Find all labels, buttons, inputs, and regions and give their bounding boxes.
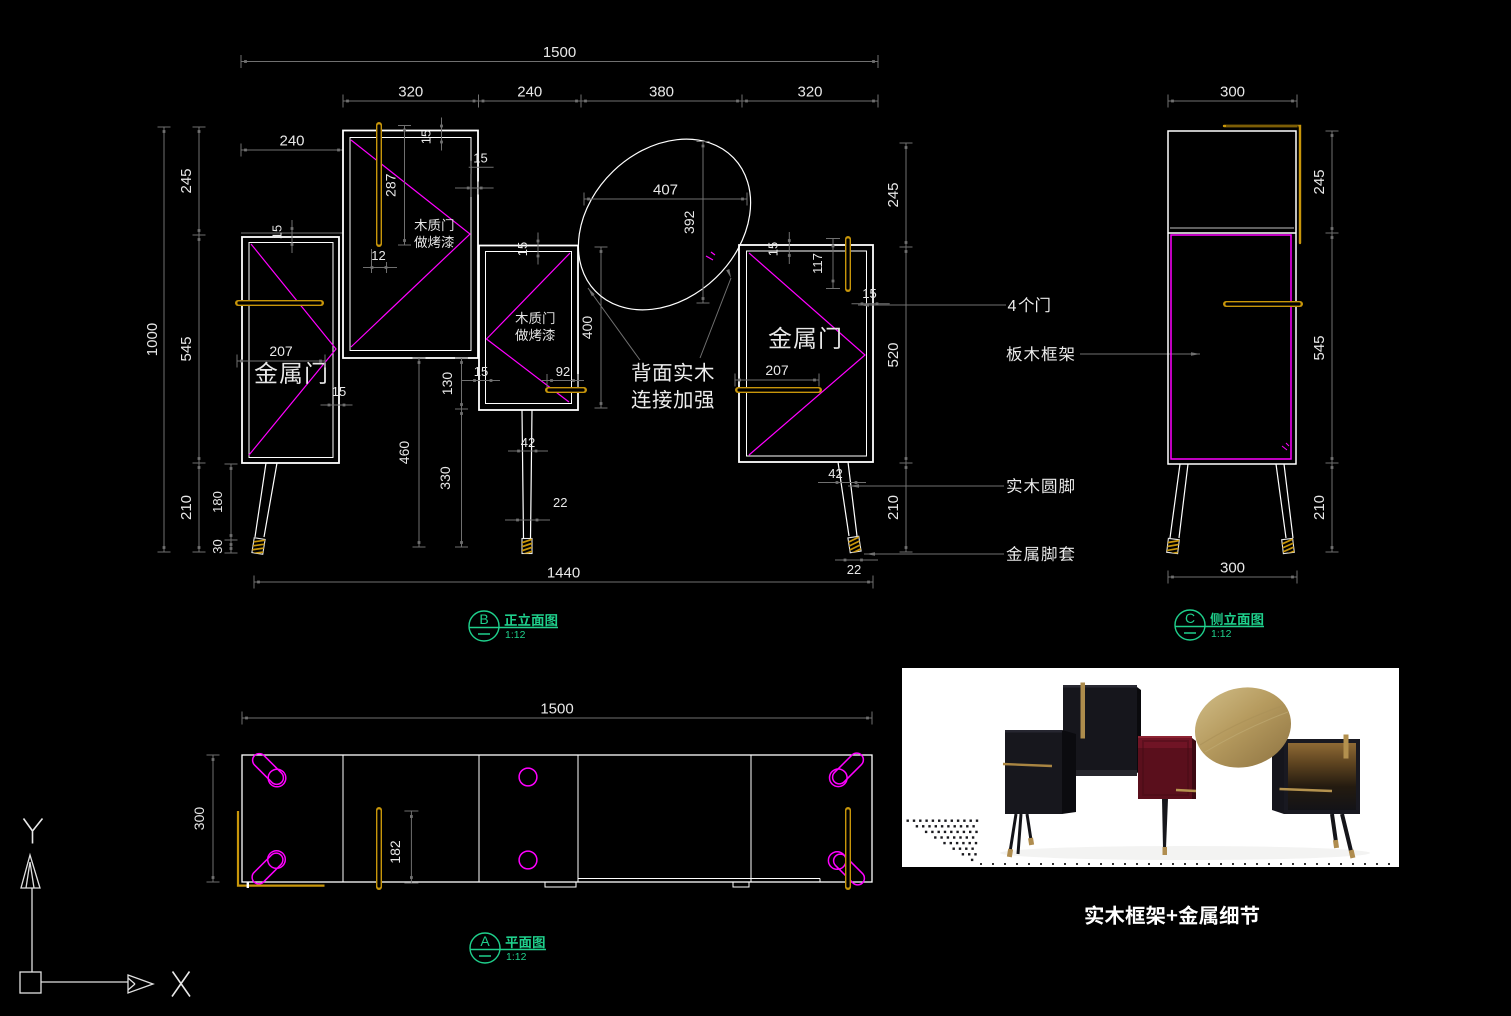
svg-text:520: 520: [885, 342, 902, 367]
svg-text:407: 407: [653, 182, 678, 199]
svg-text:1500: 1500: [540, 701, 573, 718]
svg-text:210: 210: [1311, 495, 1328, 520]
svg-text:B: B: [479, 611, 488, 627]
svg-text:C: C: [1185, 610, 1195, 626]
svg-text:207: 207: [765, 362, 789, 378]
svg-text:210: 210: [885, 495, 902, 520]
svg-text:320: 320: [797, 84, 822, 101]
svg-text:15: 15: [766, 242, 781, 256]
svg-text:300: 300: [1220, 84, 1245, 101]
svg-text:22: 22: [553, 495, 567, 510]
svg-text:460: 460: [396, 441, 412, 465]
svg-text:15: 15: [270, 225, 285, 239]
svg-text:180: 180: [210, 491, 225, 513]
svg-text:A: A: [480, 933, 490, 949]
svg-text:287: 287: [383, 173, 399, 197]
svg-text:22: 22: [847, 562, 861, 577]
svg-text:15: 15: [419, 130, 434, 144]
svg-text:15: 15: [862, 286, 876, 301]
svg-text:210: 210: [178, 495, 195, 520]
svg-text:15: 15: [332, 384, 346, 399]
svg-text:15: 15: [515, 242, 530, 256]
svg-text:12: 12: [371, 248, 385, 263]
svg-text:330: 330: [437, 466, 453, 490]
svg-text:1500: 1500: [543, 44, 576, 61]
svg-text:92: 92: [556, 364, 570, 379]
svg-text:1000: 1000: [144, 323, 161, 356]
svg-text:117: 117: [810, 253, 825, 274]
svg-text:245: 245: [178, 168, 195, 193]
svg-text:300: 300: [191, 807, 207, 831]
svg-text:1:12: 1:12: [505, 629, 526, 641]
svg-text:245: 245: [885, 182, 902, 207]
svg-text:4: 4: [1008, 298, 1017, 315]
svg-text:1440: 1440: [547, 565, 580, 582]
svg-text:300: 300: [1220, 560, 1245, 577]
svg-text:207: 207: [269, 343, 293, 359]
svg-text:380: 380: [649, 84, 674, 101]
svg-text:240: 240: [279, 133, 304, 150]
svg-text:400: 400: [579, 316, 595, 340]
svg-text:320: 320: [398, 84, 423, 101]
svg-text:15: 15: [474, 364, 488, 379]
svg-text:42: 42: [828, 466, 842, 481]
svg-text:392: 392: [681, 210, 697, 234]
svg-text:1:12: 1:12: [1211, 628, 1232, 640]
svg-text:130: 130: [439, 372, 455, 396]
svg-text:42: 42: [521, 435, 535, 450]
svg-text:1:12: 1:12: [506, 951, 527, 963]
svg-text:15: 15: [473, 151, 487, 166]
svg-text:545: 545: [178, 336, 195, 361]
svg-text:240: 240: [517, 84, 542, 101]
svg-text:30: 30: [210, 539, 225, 553]
svg-text:545: 545: [1311, 335, 1328, 360]
svg-text:182: 182: [387, 840, 403, 864]
svg-text:245: 245: [1311, 169, 1328, 194]
